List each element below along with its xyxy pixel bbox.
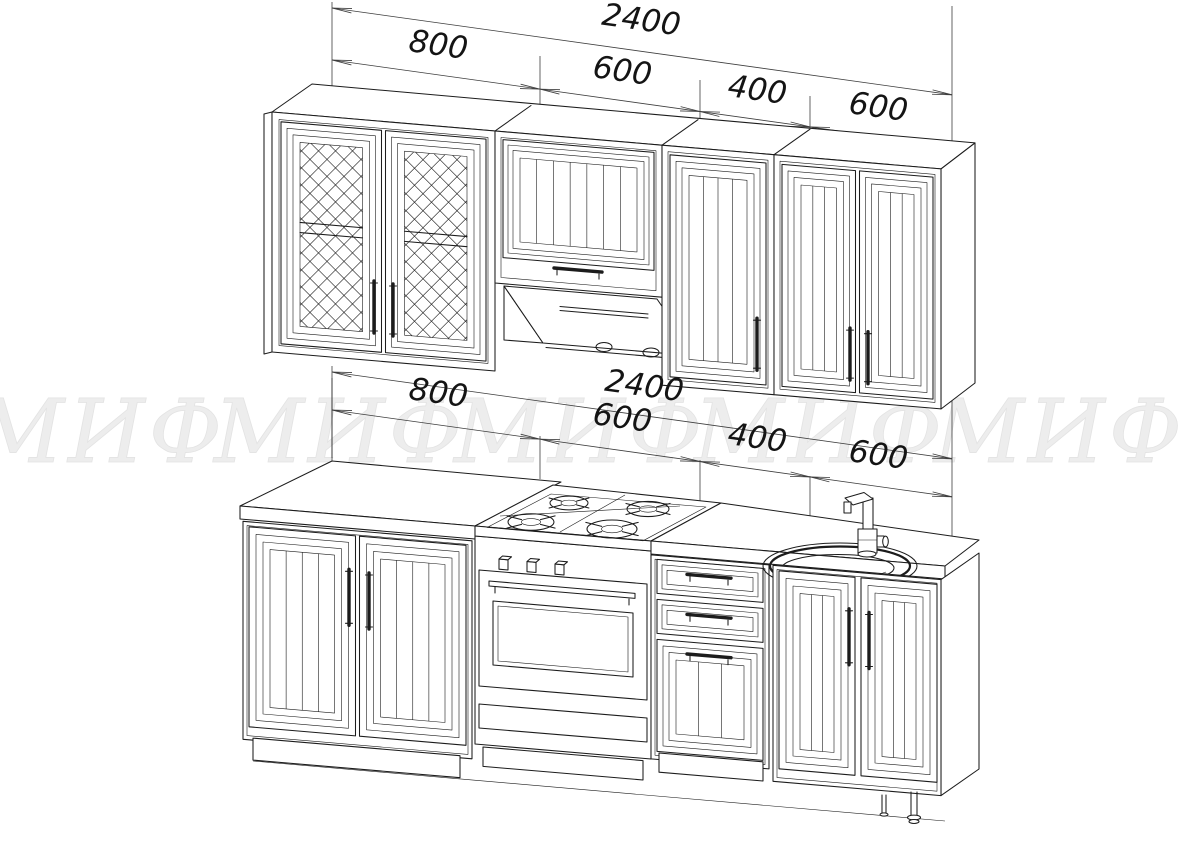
watermark-text: МИФ	[932, 380, 1186, 483]
drawing-canvas: МИФ МИФ МИФ МИФ МИФ 2400 800 600 400 600…	[0, 0, 1200, 848]
drawer-unit-400	[651, 555, 769, 781]
dim-label-upper-seg-600b: 600	[847, 85, 911, 129]
dim-label-upper-seg-600: 600	[591, 49, 655, 93]
hood-cabinet-600-lift-up-door	[495, 131, 662, 297]
dim-label-upper-overall: 2400	[600, 0, 683, 43]
dim-label-upper-seg-800: 800	[407, 23, 471, 67]
dim-label-upper-seg-400: 400	[726, 68, 790, 112]
watermark-text: МИФ	[0, 380, 226, 483]
wall-cabinet-400-single-door	[662, 145, 774, 395]
base-cabinet-800-two-doors	[243, 521, 472, 777]
sink-cabinet-600-two-doors	[773, 553, 979, 796]
wall-cabinet-600-two-doors	[774, 155, 941, 409]
adjustable-legs	[880, 792, 921, 824]
kitchen-technical-drawing: МИФ МИФ МИФ МИФ МИФ 2400 800 600 400 600…	[0, 0, 1200, 848]
